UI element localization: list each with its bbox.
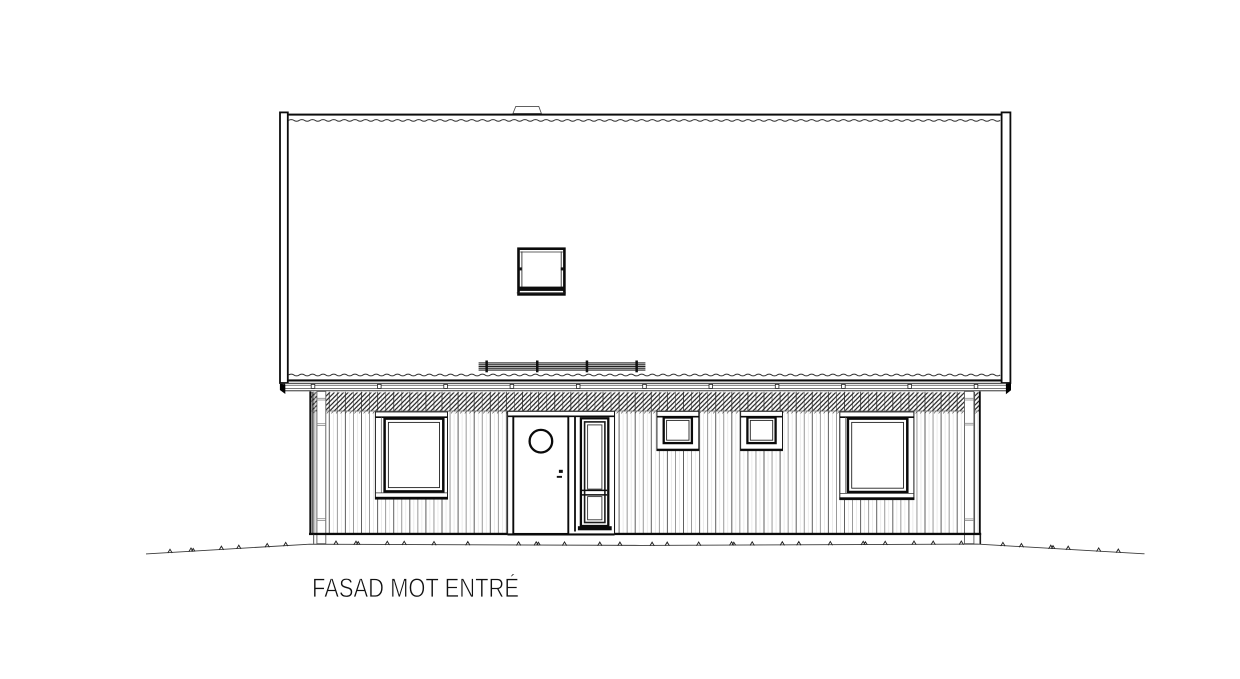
- svg-text:FASAD MOT ENTRÉ: FASAD MOT ENTRÉ: [312, 572, 519, 603]
